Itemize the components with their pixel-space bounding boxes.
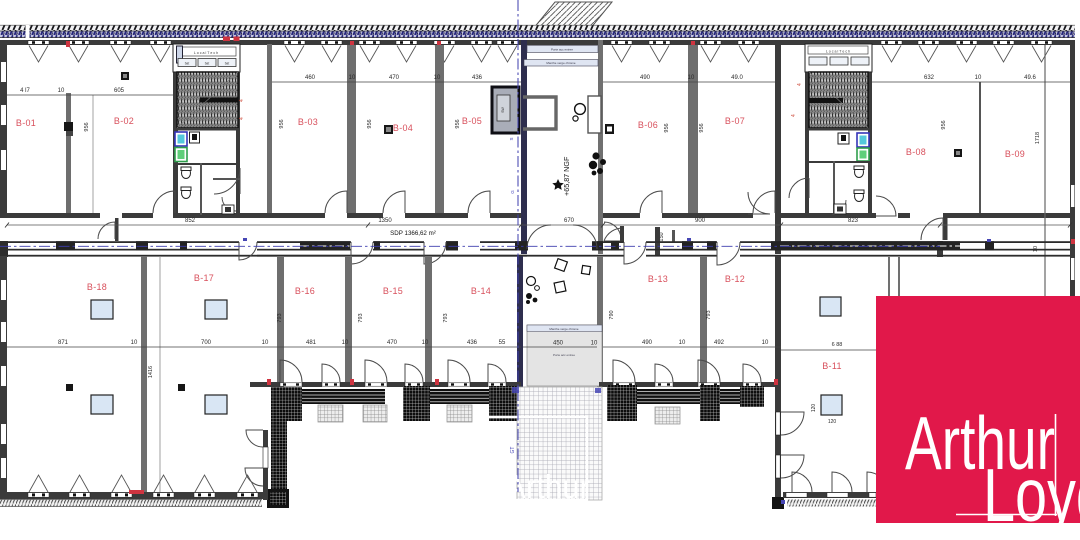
- svg-text:10: 10: [58, 88, 65, 94]
- svg-text:436: 436: [472, 75, 483, 81]
- svg-text:55: 55: [499, 340, 506, 346]
- svg-text:10: 10: [349, 75, 356, 81]
- svg-text:793: 793: [358, 313, 364, 322]
- svg-text:10: 10: [342, 340, 349, 346]
- svg-text:1350: 1350: [378, 218, 392, 224]
- svg-text:823: 823: [848, 218, 859, 224]
- svg-text:10: 10: [131, 340, 138, 346]
- svg-text:852: 852: [185, 218, 196, 224]
- svg-text:B-13: B-13: [648, 274, 668, 284]
- svg-text:1718: 1718: [1035, 132, 1041, 144]
- svg-text:B-01: B-01: [16, 118, 36, 128]
- svg-text:49.6: 49.6: [1024, 75, 1036, 81]
- svg-text:956: 956: [941, 120, 947, 129]
- svg-text:L o c a l T e c h: L o c a l T e c h: [826, 50, 850, 54]
- svg-text:10: 10: [262, 340, 269, 346]
- svg-text:10: 10: [422, 340, 429, 346]
- svg-text:bat: bat: [225, 62, 230, 66]
- svg-text:B-05: B-05: [462, 116, 482, 126]
- svg-text:470: 470: [389, 75, 400, 81]
- svg-text:GT: GT: [510, 447, 516, 454]
- svg-text:B-16: B-16: [295, 286, 315, 296]
- svg-text:900: 900: [695, 218, 706, 224]
- svg-text:956: 956: [279, 119, 285, 128]
- svg-text:B-04: B-04: [393, 123, 413, 133]
- svg-text:10: 10: [434, 75, 441, 81]
- svg-text:SDP 1366,62 m²: SDP 1366,62 m²: [390, 230, 436, 237]
- svg-text:700: 700: [201, 340, 212, 346]
- svg-text:120: 120: [811, 404, 817, 413]
- svg-text:S: S: [509, 137, 514, 140]
- svg-text:10: 10: [591, 341, 598, 347]
- svg-text:436: 436: [467, 340, 478, 346]
- svg-text:B-06: B-06: [638, 120, 658, 130]
- svg-text:10: 10: [688, 75, 695, 81]
- svg-text:790: 790: [609, 310, 615, 319]
- svg-text:481: 481: [306, 340, 317, 346]
- svg-text:G: G: [510, 190, 515, 194]
- svg-text:+65,87 NGF: +65,87 NGF: [562, 156, 571, 196]
- svg-text:450: 450: [553, 341, 564, 347]
- svg-text:605: 605: [114, 88, 125, 94]
- svg-text:10: 10: [975, 75, 982, 81]
- svg-text:4: 4: [239, 117, 245, 120]
- svg-text:Porte acc entree: Porte acc entree: [551, 48, 573, 52]
- svg-text:B-18: B-18: [87, 282, 107, 292]
- svg-text:B-08: B-08: [906, 147, 926, 157]
- svg-text:10: 10: [762, 340, 769, 346]
- svg-text:871: 871: [58, 340, 69, 346]
- svg-text:Marche verge chrome: Marche verge chrome: [546, 61, 576, 65]
- svg-text:4: 4: [791, 114, 797, 117]
- svg-text:956: 956: [664, 123, 670, 132]
- svg-text:956: 956: [455, 119, 461, 128]
- svg-text:492: 492: [714, 340, 725, 346]
- svg-text:793: 793: [706, 310, 712, 319]
- svg-text:120: 120: [828, 419, 837, 425]
- svg-text:1416: 1416: [148, 366, 154, 378]
- svg-text:SW: SW: [501, 106, 505, 112]
- svg-text:956: 956: [699, 123, 705, 132]
- svg-text:Porte acc entree: Porte acc entree: [553, 353, 575, 357]
- svg-text:B-14: B-14: [471, 286, 491, 296]
- svg-text:632: 632: [924, 75, 935, 81]
- svg-text:956: 956: [367, 119, 373, 128]
- svg-text:L o c a l T e c h: L o c a l T e c h: [194, 51, 218, 55]
- svg-text:B-12: B-12: [725, 274, 745, 284]
- svg-text:B-09: B-09: [1005, 149, 1025, 159]
- svg-text:bat: bat: [205, 62, 210, 66]
- svg-text:670: 670: [564, 218, 575, 224]
- svg-text:6 88: 6 88: [832, 342, 843, 348]
- svg-text:956: 956: [84, 122, 90, 131]
- svg-text:Marche verge chrome: Marche verge chrome: [549, 327, 579, 331]
- svg-text:B-15: B-15: [383, 286, 403, 296]
- svg-text:B-03: B-03: [298, 117, 318, 127]
- svg-text:49.0: 49.0: [731, 75, 743, 81]
- svg-text:4 l7: 4 l7: [20, 88, 30, 94]
- svg-text:B-17: B-17: [194, 273, 214, 283]
- svg-text:4: 4: [239, 99, 245, 102]
- svg-text:B-11: B-11: [822, 361, 842, 371]
- svg-text:793: 793: [277, 313, 283, 322]
- svg-text:4: 4: [797, 83, 803, 86]
- svg-text:490: 490: [640, 75, 651, 81]
- svg-text:bat: bat: [185, 62, 190, 66]
- svg-text:10: 10: [679, 340, 686, 346]
- svg-text:B-07: B-07: [725, 116, 745, 126]
- svg-text:793: 793: [443, 313, 449, 322]
- svg-text:490: 490: [642, 340, 653, 346]
- svg-text:460: 460: [305, 75, 316, 81]
- svg-text:B-02: B-02: [114, 116, 134, 126]
- svg-text:470: 470: [387, 340, 398, 346]
